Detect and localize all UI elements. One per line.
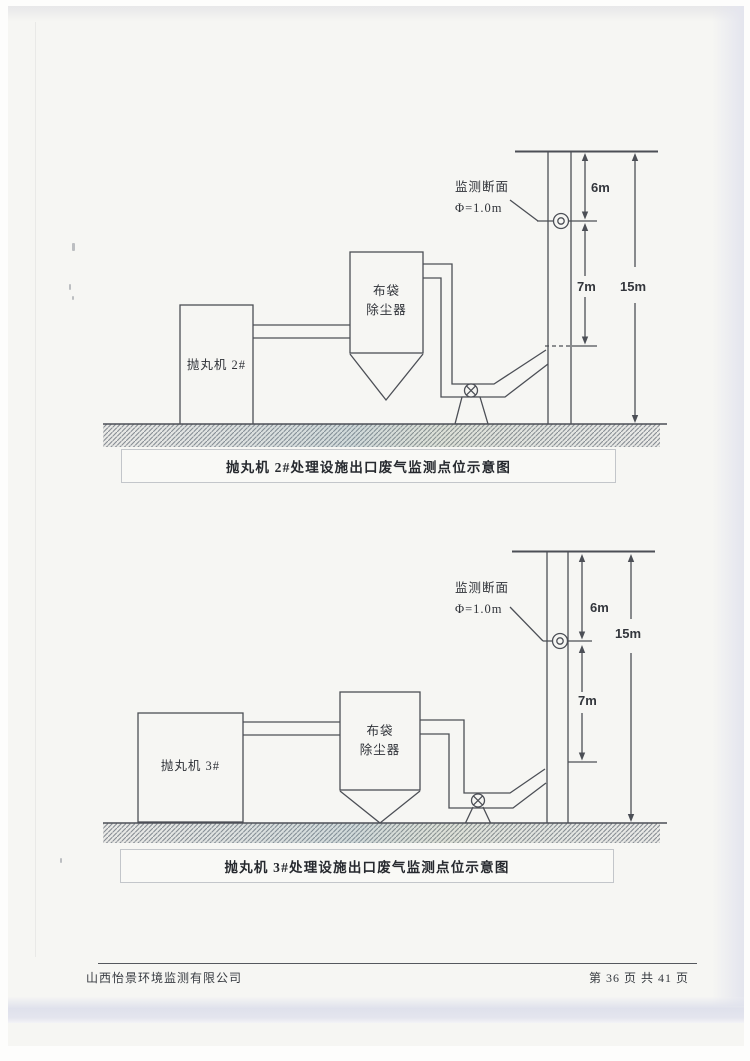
arrow-up-icon [628,554,634,562]
outlet-duct-lower [423,278,548,397]
arrow-down-icon [582,337,588,345]
arrow-down-icon [579,632,585,640]
dim-7m-label: 7m [577,279,596,294]
collector-label-2-d1: 除尘器 [350,299,423,318]
diagram2-caption: 抛丸机 3#处理设施出口废气监测点位示意图 [120,849,614,883]
diagram1-caption: 抛丸机 2#处理设施出口废气监测点位示意图 [121,449,616,483]
ground-tint [103,823,660,843]
arrow-up-icon [579,554,585,562]
footer-rule [98,963,697,964]
stack [548,152,571,424]
diameter-label: Φ=1.0m [455,599,509,620]
monitor-note-d1: 监测断面 Φ=1.0m [455,177,509,219]
diameter-label: Φ=1.0m [455,198,509,219]
collector-label-1-d1: 布袋 [350,280,423,299]
inlet-duct [243,722,340,735]
footer-page-number: 第 36 页 共 41 页 [589,969,689,986]
dim-7m-label: 7m [578,693,597,708]
monitor-leader-line [510,200,538,221]
monitor-point-icon [554,214,569,229]
stack [547,552,568,823]
monitor-section-label: 监测断面 [455,177,509,198]
ground-tint [103,424,660,447]
arrow-up-icon [632,153,638,161]
fan-stand [455,397,488,424]
machine-label-d1: 抛丸机 2# [180,354,253,373]
fan-stand [465,807,491,824]
arrow-up-icon [582,223,588,231]
arrow-down-icon [582,212,588,220]
monitor-point-icon [553,634,568,649]
arrow-up-icon [582,153,588,161]
dim-15m-label: 15m [620,279,646,294]
machine-label-d2: 抛丸机 3# [138,755,243,774]
dim-15m-label: 15m [615,626,641,641]
outlet-duct-upper [420,720,545,793]
diagram-linework [0,0,750,1061]
collector-label-2-d2: 除尘器 [340,739,420,758]
monitor-note-d2: 监测断面 Φ=1.0m [455,578,509,620]
collector-label-1-d2: 布袋 [340,720,420,739]
collector-hopper [350,354,423,400]
monitor-leader-line [510,607,543,641]
arrow-up-icon [579,645,585,653]
monitor-section-label: 监测断面 [455,578,509,599]
footer-company: 山西怡景环境监测有限公司 [86,969,242,986]
scanned-report-page: { "colors": { "paper": "#f6f6f3", "line"… [0,0,750,1061]
arrow-down-icon [579,753,585,761]
collector-hopper [340,791,420,823]
arrow-down-icon [628,814,634,822]
dim-6m-label: 6m [590,600,609,615]
arrow-down-icon [632,415,638,423]
inlet-duct [253,325,350,338]
dim-6m-label: 6m [591,180,610,195]
